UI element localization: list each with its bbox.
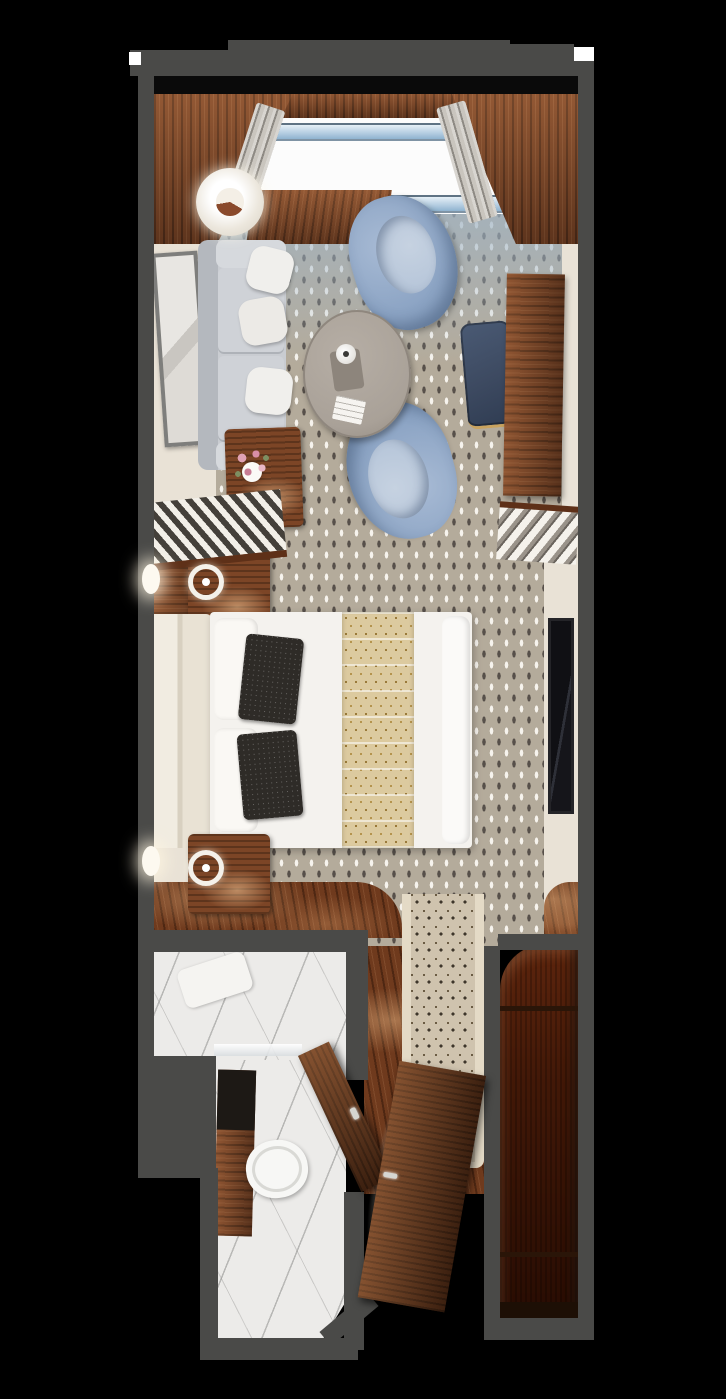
vanity-sink <box>217 1070 257 1131</box>
wall-right <box>578 56 594 942</box>
floor-lamp <box>196 168 264 236</box>
wall-sconce-bottom <box>142 846 160 876</box>
bathroom-wall-block <box>138 1056 216 1178</box>
headboard <box>148 614 212 848</box>
accent-pillow <box>236 730 303 821</box>
table-lamp-top <box>188 564 224 600</box>
shower-glass <box>214 1044 302 1056</box>
wall-top <box>130 50 594 76</box>
closet-wall-left <box>484 946 500 1338</box>
accent-pillow <box>238 633 305 725</box>
closet-shelf <box>500 1006 578 1011</box>
closet-wall-bottom <box>484 1318 594 1340</box>
door-handle <box>349 1107 360 1120</box>
flower-bouquet <box>232 446 272 486</box>
sofa-backrest <box>198 240 218 470</box>
wall-top-shadow <box>154 76 578 94</box>
throw-pillow <box>236 294 289 347</box>
bathroom-wall-left <box>138 938 154 1066</box>
bed-runner <box>342 612 414 848</box>
closet-shelf <box>500 1252 578 1257</box>
hall-wood-floor-right <box>544 882 578 938</box>
wall-sconce-top <box>142 564 160 594</box>
bathroom-wall-top <box>152 930 368 952</box>
stateroom-floor-plan <box>0 0 726 1399</box>
door-handle <box>383 1172 398 1179</box>
wall-left <box>138 56 154 940</box>
window-notch-left <box>129 52 141 65</box>
closet-interior <box>500 944 578 1324</box>
teapot <box>336 344 356 364</box>
closet-wall-right <box>578 942 594 1340</box>
book <box>332 395 366 425</box>
coffee-table <box>303 310 411 438</box>
bathroom-wall-right <box>346 930 368 1080</box>
bed <box>210 612 472 848</box>
shelf-unit-right <box>496 501 580 564</box>
shelf-unit-left <box>147 489 287 571</box>
bathroom-wall-left-lower <box>200 1168 218 1360</box>
window-notch-right <box>574 47 594 61</box>
wall-tv <box>548 618 574 814</box>
duvet-fold <box>442 616 470 844</box>
desk <box>503 274 565 497</box>
throw-pillow <box>244 366 295 417</box>
table-lamp-bottom <box>188 850 224 886</box>
